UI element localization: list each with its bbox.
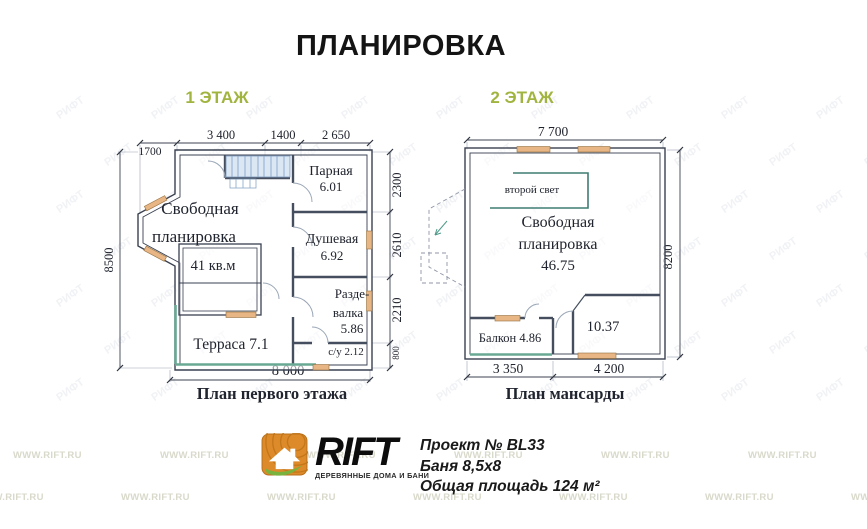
dim-4200: 4 200 [594,361,625,376]
watermark-text: WWW.RIFT.RU [851,492,867,503]
building-size: Баня 8,5x8 [420,457,600,478]
page-title: ПЛАНИРОВКА [0,30,802,63]
project-info: Проект № BL33 Баня 8,5x8 Общая площадь 1… [420,436,600,498]
total-area: Общая площадь 124 м² [420,477,600,498]
room-label-free2-1: Свободная [522,214,596,231]
dim-2650: 2 650 [322,128,350,142]
stamp-watermark: РИФТ [814,94,846,122]
stamp-watermark: РИФТ [767,141,799,169]
dim-2210: 2210 [390,298,404,323]
dim-7700: 7 700 [538,124,569,139]
dim-3400: 3 400 [207,128,235,142]
stamp-watermark: РИФТ [767,235,799,263]
room-label-su: с/у 2.12 [328,346,363,358]
watermark-text: WWW.RIFT.RU [160,450,229,461]
watermark-text: WWW.RIFT.RU [267,492,336,503]
dim-1400: 1400 [271,128,296,142]
stamp-watermark: РИФТ [814,188,846,216]
floor2-caption: План мансарды [506,384,625,403]
stamp-watermark: РИФТ [719,188,751,216]
watermark-text: WWW.RIFT.RU [121,492,190,503]
room-label-balcony: Балкон 4.86 [479,331,541,345]
room-area-parnaya: 6.01 [320,179,343,194]
floor1-label: 1 ЭТАЖ [162,88,272,108]
room-label-razde-1: Разде- [335,286,370,301]
stamp-watermark: РИФТ [814,376,846,404]
watermark-text: WWW.RIFT.RU [705,492,774,503]
dim-3350: 3 350 [493,361,524,376]
floor2-roof-arrow [435,221,447,235]
floor1-room41-walls [179,244,261,315]
rift-logo-icon [261,433,308,476]
dim-8500: 8500 [102,248,116,273]
stamp-watermark: РИФТ [719,376,751,404]
room-label-parnaya: Парная [309,164,353,179]
watermark-text: WWW.RIFT.RU [13,450,82,461]
floor2-plan-drawing: 7 700 8200 3 350 4 200 [413,115,713,415]
stamp-watermark: РИФТ [767,329,799,357]
dim-2300: 2300 [390,173,404,198]
floorplan-sheet: РИФТРИФТРИФТРИФТРИФТРИФТРИФТРИФТРИФТРИФТ… [0,0,867,529]
floor2-outer-wall [465,148,665,359]
watermark-text: WWW.RIFT.RU [748,450,817,461]
brand-tagline: ДЕРЕВЯННЫЕ ДОМА И БАНИ [315,471,429,480]
stamp-watermark: РИФТ [814,282,846,310]
room-area-razde: 5.86 [341,321,364,336]
dim-2610: 2610 [390,233,404,258]
stamp-watermark: РИФТ [719,94,751,122]
floor1-plan-drawing: 3 400 1400 2 650 1700 8500 2300 2610 221… [80,115,410,415]
watermark-text: WWW.RIFT.RU [601,450,670,461]
room-label-free-2: планировка [152,227,236,246]
room-label-dush: Душевая [306,232,359,247]
floor2-bay-outline [421,189,465,287]
label-second-light: второй свет [505,184,560,196]
room-area-dush: 6.92 [321,248,344,263]
room-label-free2-2: планировка [519,236,598,253]
stamp-watermark: РИФТ [862,329,867,357]
watermark-text: WWW.RIFT.RU [0,492,44,503]
dim-1700: 1700 [139,146,162,158]
room-label-free-1: Свободная [161,199,239,218]
stamp-watermark: РИФТ [719,282,751,310]
stamp-watermark: РИФТ [862,141,867,169]
room-label-41: 41 кв.м [191,258,236,274]
floor1-caption: План первого этажа [197,384,347,403]
dim-800: 800 [391,346,401,360]
room-area-1037: 10.37 [587,319,620,335]
stamp-watermark: РИФТ [862,235,867,263]
room-label-razde-2: валка [333,305,363,320]
project-number: Проект № BL33 [420,436,600,457]
rift-logo: RIFT ДЕРЕВЯННЫЕ ДОМА И БАНИ [261,433,429,480]
floor2-label: 2 ЭТАЖ [467,88,577,108]
room-area-free2: 46.75 [541,258,575,274]
brand-name: RIFT [315,433,429,471]
room-label-terrace: Терраса 7.1 [193,336,268,353]
